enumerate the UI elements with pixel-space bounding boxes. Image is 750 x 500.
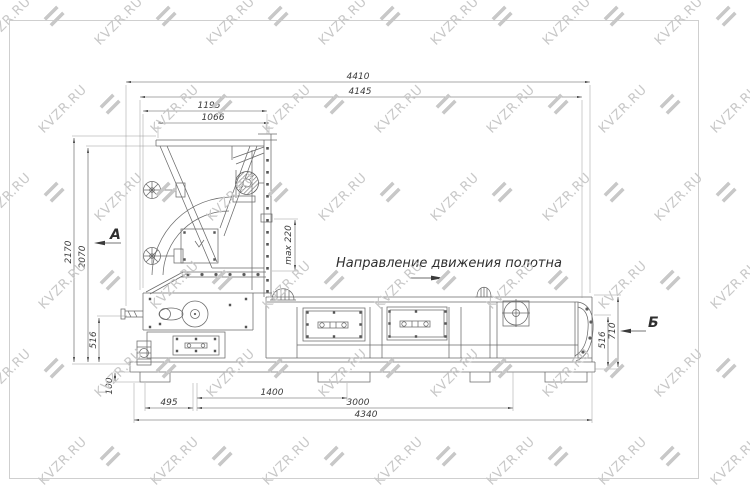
dim-1400: 1400 (261, 388, 284, 398)
section-view-markers: А Б (94, 227, 659, 333)
motor (233, 170, 264, 202)
dim-2070: 2070 (78, 245, 88, 268)
dim-516-left: 516 (89, 331, 99, 348)
hopper-assembly (144, 134, 278, 297)
dim-4340: 4340 (355, 410, 378, 420)
dim-3000: 3000 (347, 398, 370, 408)
dim-100: 100 (105, 377, 115, 394)
base-frame (130, 362, 595, 382)
dim-2170: 2170 (64, 240, 74, 263)
section-arrow-b (620, 329, 631, 333)
direction-annotation: Направление движения полотна (336, 256, 562, 280)
conveyor-frame (266, 287, 592, 362)
dim-710: 710 (608, 322, 618, 339)
handwheel-bottom (144, 248, 184, 265)
dim-516-right: 516 (598, 331, 608, 348)
machine-drawing: 4410 4145 1195 1066 2170 2070 516 100 ma… (0, 0, 750, 500)
dim-4410: 4410 (347, 72, 370, 82)
belt-direction-arrow (431, 276, 444, 281)
dim-495: 495 (160, 398, 177, 408)
section-label-a: А (109, 227, 121, 243)
section-label-b: Б (648, 315, 659, 331)
dim-1195: 1195 (198, 101, 221, 111)
dim-max-220: max 220 (284, 225, 294, 265)
drive-unit (121, 293, 272, 365)
dim-1066: 1066 (202, 113, 225, 123)
dimension-lines (74, 82, 618, 420)
section-arrow-a (94, 241, 105, 245)
drawing-page: 4410 4145 1195 1066 2170 2070 516 100 ma… (0, 0, 750, 500)
inspection-panels (303, 307, 447, 341)
dimension-labels: 4410 4145 1195 1066 2170 2070 516 100 ma… (64, 72, 618, 420)
belt-direction-label: Направление движения полотна (336, 256, 562, 271)
dim-4145: 4145 (349, 87, 372, 97)
